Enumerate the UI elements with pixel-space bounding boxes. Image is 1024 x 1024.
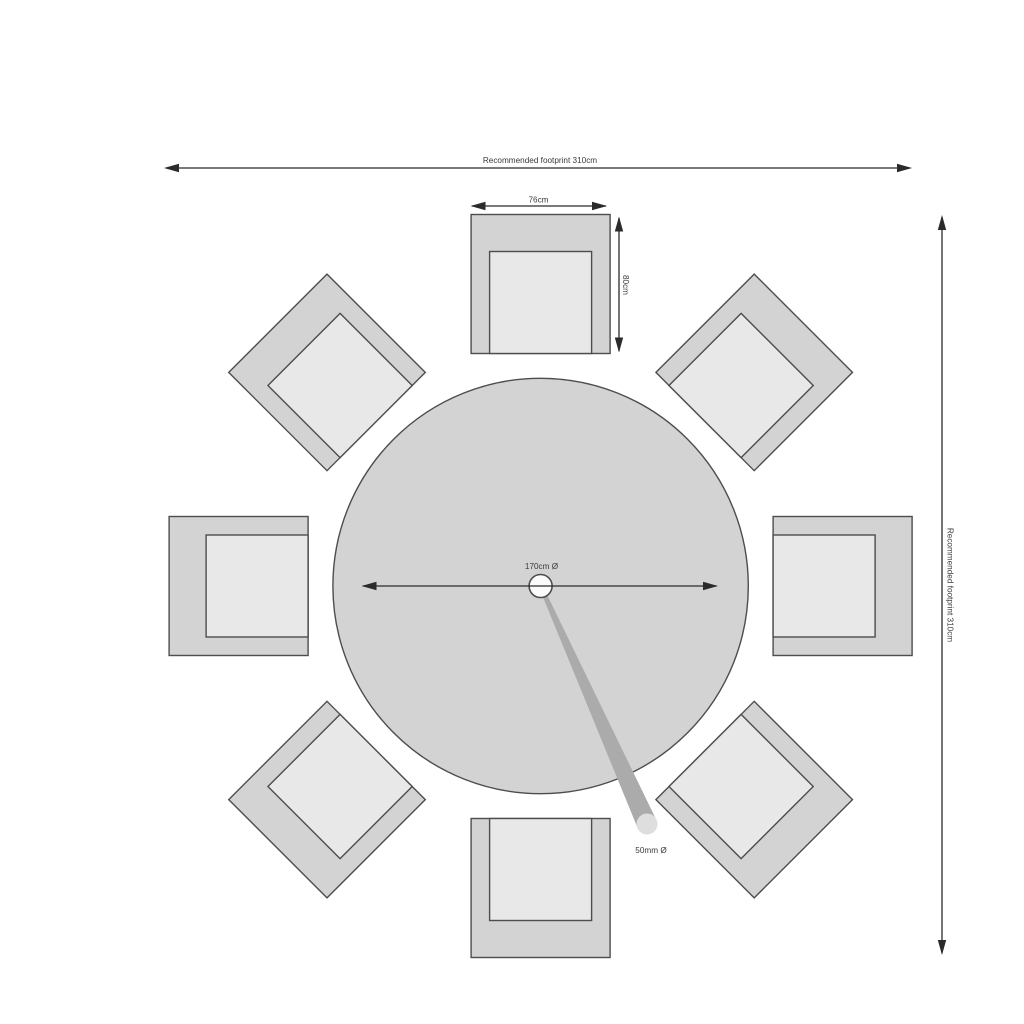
- svg-text:Recommended footprint 310cm: Recommended footprint 310cm: [483, 156, 597, 165]
- svg-text:76cm: 76cm: [528, 196, 548, 205]
- svg-text:50mm Ø: 50mm Ø: [635, 846, 667, 855]
- svg-text:Recommended footprint 310cm: Recommended footprint 310cm: [946, 528, 955, 642]
- svg-text:80cm: 80cm: [621, 275, 630, 295]
- svg-text:170cm Ø: 170cm Ø: [525, 562, 559, 571]
